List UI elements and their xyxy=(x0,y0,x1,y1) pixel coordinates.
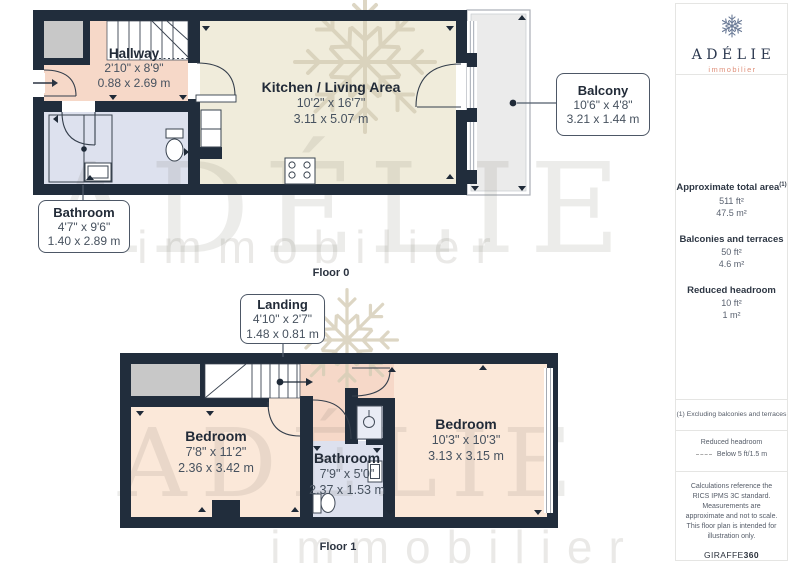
floor1-stairs xyxy=(205,364,313,398)
stove-icon xyxy=(285,158,315,184)
stat-balconies-terraces: Balconies and terraces 50 ft² 4.6 m² xyxy=(676,233,787,270)
sidebar-panel: ADÉLIE immobilier Approximate total area… xyxy=(675,3,788,561)
watermark-tagline-floor0: immobilier xyxy=(137,221,507,273)
callout-balcony: Balcony 10'6" x 4'8" 3.21 x 1.44 m xyxy=(556,73,650,136)
brand-logo: ADÉLIE immobilier xyxy=(676,4,787,75)
callout-bathroom-floor0: Bathroom 4'7" x 9'6" 1.40 x 2.89 m xyxy=(38,200,130,253)
area-summary: Approximate total area(1) 511 ft² 47.5 m… xyxy=(676,75,787,399)
callout-landing: Landing 4'10" x 2'7" 1.48 x 0.81 m xyxy=(240,294,325,344)
floor1-caption: Floor 1 xyxy=(320,541,357,553)
floor-plan-page: ADÉLIE immobilier ADÉLIE immobilier xyxy=(0,0,800,566)
logo-name: ADÉLIE xyxy=(680,47,787,63)
floor1-window xyxy=(544,368,553,513)
dashed-line-swatch xyxy=(696,454,712,455)
stat-reduced-headroom: Reduced headroom 10 ft² 1 m² xyxy=(676,284,787,321)
floor0-stairs xyxy=(107,21,188,60)
stat-total-area: Approximate total area(1) 511 ft² 47.5 m… xyxy=(676,179,787,218)
area-footnote: (1) Excluding balconies and terraces xyxy=(676,400,787,431)
giraffe360-brand: GIRAFFE360 xyxy=(684,550,779,560)
disclaimer: Calculations reference the RICS IPMS 3C … xyxy=(676,472,787,560)
snowflake-icon xyxy=(719,13,745,39)
logo-tagline: immobilier xyxy=(678,65,787,74)
reduced-headroom-legend: Reduced headroom Below 5 ft/1.5 m xyxy=(676,431,787,472)
toilet-icon xyxy=(313,494,321,513)
floor0-caption: Floor 0 xyxy=(313,267,350,279)
toilet-icon xyxy=(166,129,183,138)
floor0-balcony-window xyxy=(467,21,477,184)
